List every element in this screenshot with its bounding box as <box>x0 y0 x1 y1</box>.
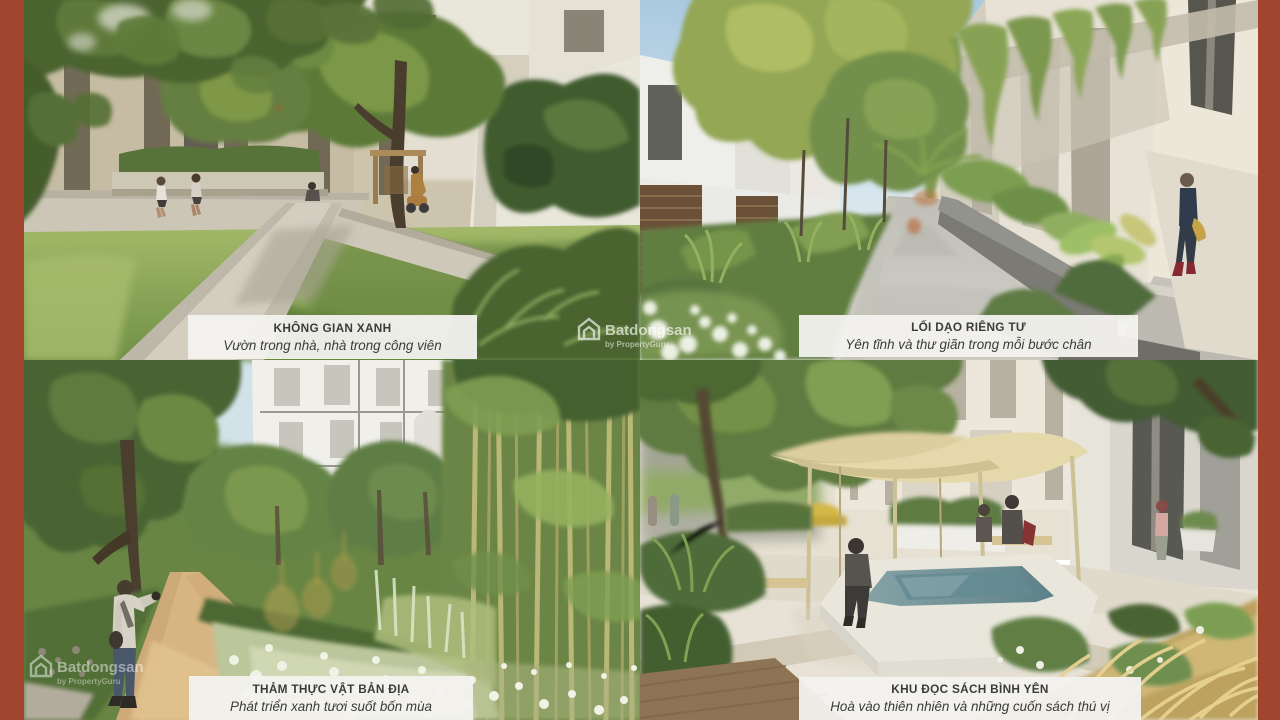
svg-text:Batdongsan: Batdongsan <box>605 322 692 339</box>
svg-text:by PropertyGuru: by PropertyGuru <box>605 340 669 349</box>
svg-text:by PropertyGuru: by PropertyGuru <box>57 677 121 686</box>
svg-text:Batdongsan: Batdongsan <box>57 659 144 676</box>
